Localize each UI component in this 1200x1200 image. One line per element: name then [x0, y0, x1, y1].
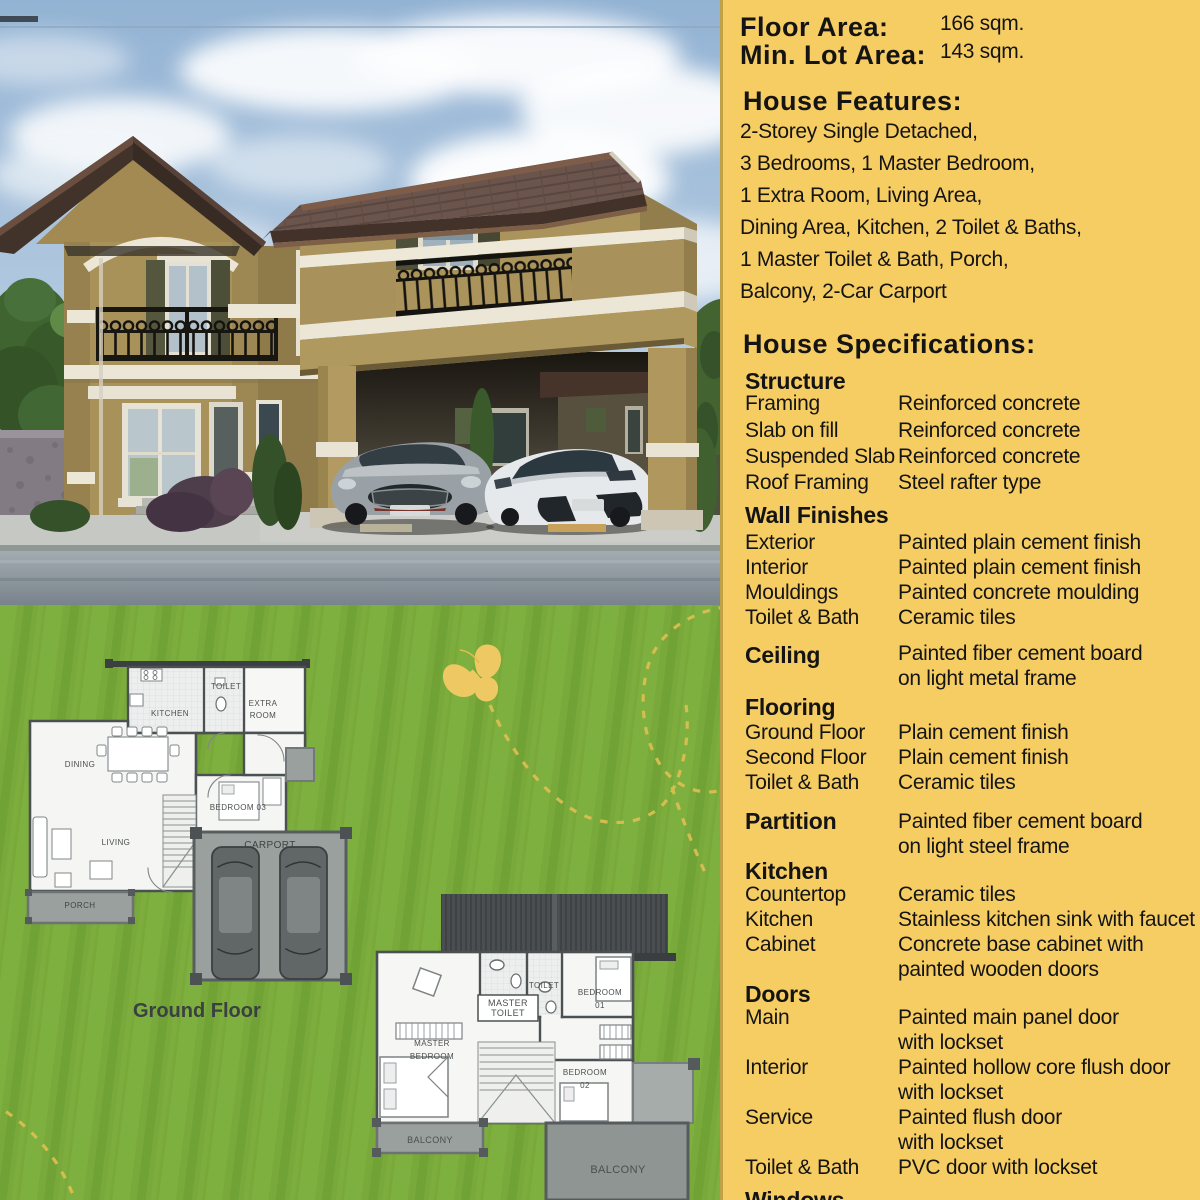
svg-text:02: 02	[580, 1081, 590, 1090]
svg-text:BEDROOM: BEDROOM	[410, 1052, 454, 1061]
svg-text:BALCONY: BALCONY	[590, 1164, 646, 1176]
svg-text:KITCHEN: KITCHEN	[151, 709, 189, 718]
svg-text:CARPORT: CARPORT	[244, 840, 296, 851]
svg-text:BEDROOM: BEDROOM	[578, 988, 622, 997]
svg-text:TOILET: TOILET	[529, 981, 559, 990]
svg-text:01: 01	[595, 1001, 605, 1010]
svg-text:ROOM: ROOM	[250, 711, 277, 720]
svg-text:BEDROOM 03: BEDROOM 03	[210, 803, 267, 812]
svg-text:TOILET: TOILET	[211, 682, 241, 691]
svg-text:PORCH: PORCH	[65, 901, 96, 910]
svg-text:DINING: DINING	[65, 760, 95, 769]
svg-text:BEDROOM: BEDROOM	[563, 1068, 607, 1077]
svg-text:LIVING: LIVING	[102, 838, 131, 847]
svg-text:Ground Floor: Ground Floor	[133, 1000, 261, 1022]
svg-text:EXTRA: EXTRA	[249, 699, 278, 708]
svg-text:TOILET: TOILET	[491, 1008, 525, 1018]
svg-text:BALCONY: BALCONY	[407, 1135, 453, 1145]
svg-text:MASTER: MASTER	[414, 1039, 450, 1048]
svg-text:MASTER: MASTER	[488, 998, 528, 1008]
